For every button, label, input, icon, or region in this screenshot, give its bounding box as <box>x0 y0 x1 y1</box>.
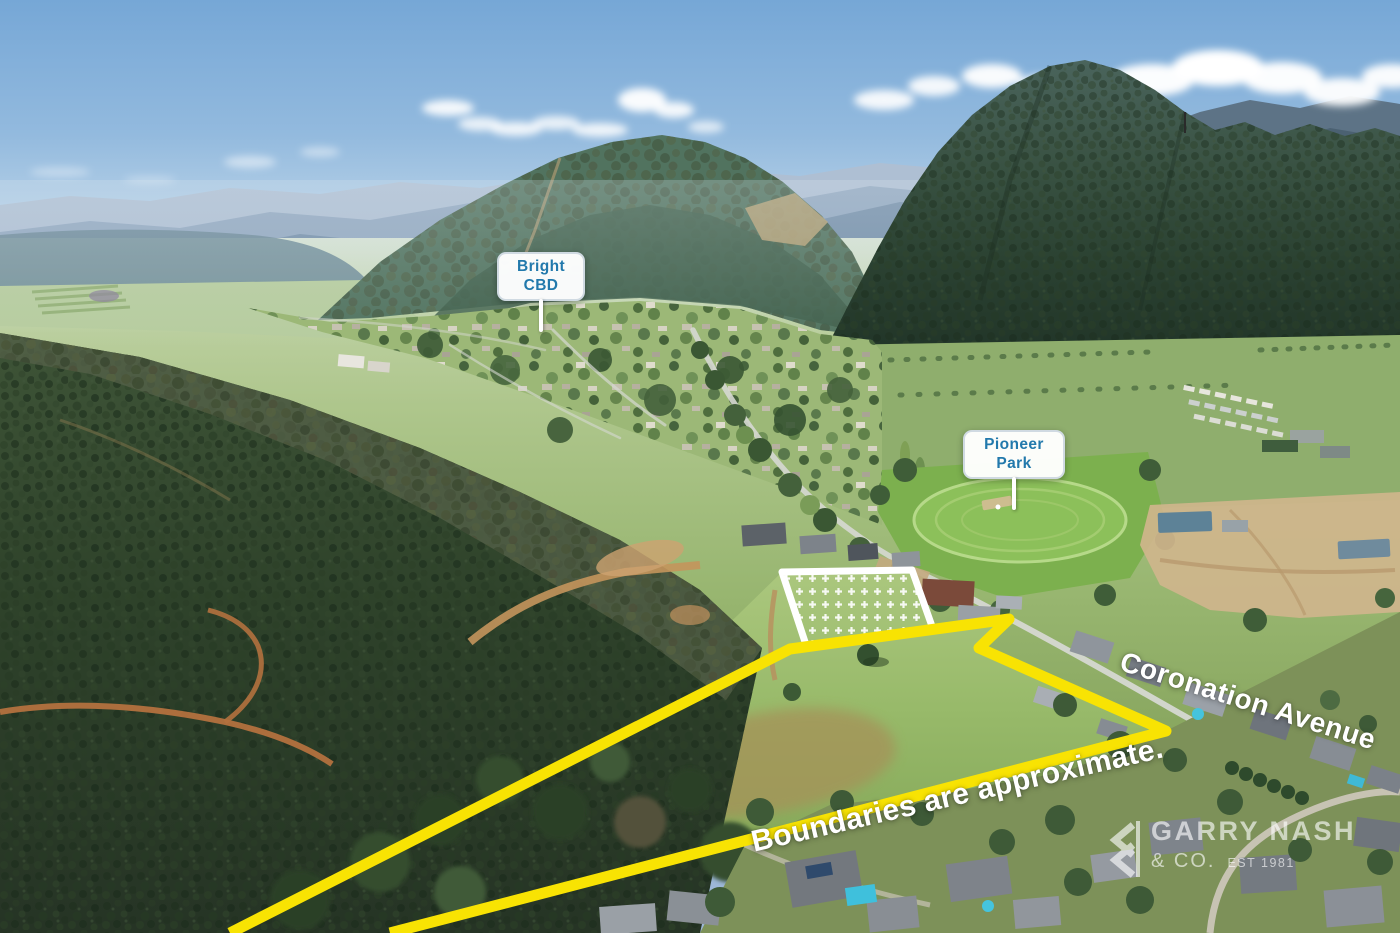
label-line: Bright <box>514 258 568 277</box>
map-label-pioneer-park: Pioneer Park <box>963 430 1065 479</box>
label-line: CBD <box>514 277 568 296</box>
agency-watermark: GARRY NASH & CO. EST 1981 <box>1108 817 1356 879</box>
map-label-bright-cbd: Bright CBD <box>497 252 585 301</box>
label-pointer <box>539 299 543 332</box>
watermark-brand-name: GARRY NASH <box>1151 817 1356 847</box>
label-pointer <box>1012 477 1016 510</box>
watermark-established: EST 1981 <box>1227 856 1294 870</box>
boundary-overlay <box>0 0 1400 933</box>
garry-nash-logo-icon <box>1108 819 1142 879</box>
watermark-suffix: & CO. <box>1151 850 1215 873</box>
label-line: Pioneer <box>980 436 1048 455</box>
aerial-property-photo: Bright CBD Pioneer Park Coronation Avenu… <box>0 0 1400 933</box>
label-line: Park <box>980 455 1048 474</box>
